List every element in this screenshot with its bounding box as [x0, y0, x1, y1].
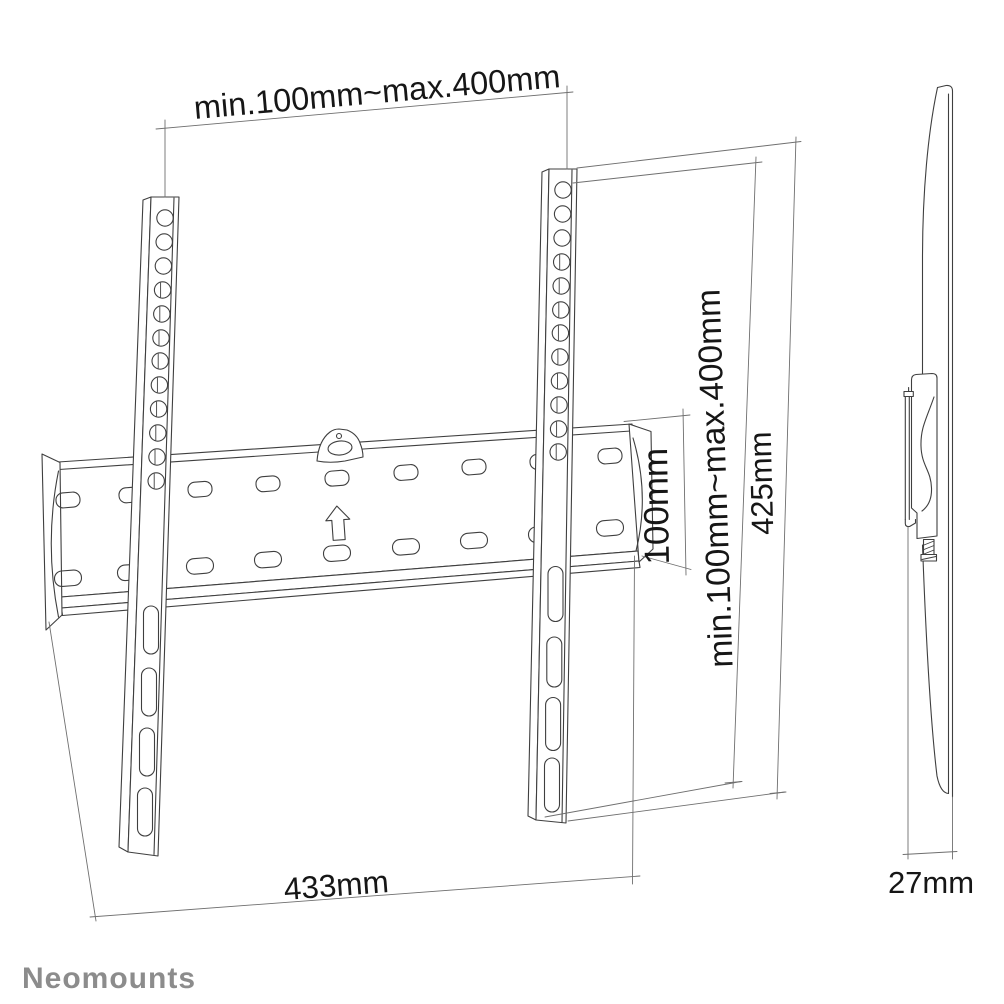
locking-screw [921, 540, 937, 562]
label-vesa-width: min.100mm~max.400mm [192, 58, 561, 126]
dim-vesa-height-ext-bottom [545, 782, 741, 818]
dim-plate-height-line [683, 409, 686, 575]
tv-back-lower [923, 545, 949, 794]
dim-rail-height-ext-top [577, 142, 801, 169]
label-plate-width: 433mm [282, 863, 389, 907]
dim-plate-width-ext-left [49, 622, 96, 921]
dim-rail-height-line [777, 137, 796, 799]
dim-wall-distance-line [903, 852, 957, 855]
brand-logo: Neomounts [22, 962, 196, 995]
label-plate-height: 100mm [636, 448, 677, 565]
label-vesa-height: min.100mm~max.400mm [690, 288, 740, 668]
side-view [904, 85, 953, 797]
level-latch [317, 429, 363, 462]
mount-bracket-profile [904, 374, 937, 562]
wall-mount-drawing-page: min.100mm~max.400mm min.100mm~max.400mm … [0, 0, 1004, 1004]
label-wall-distance: 27mm [888, 865, 974, 900]
label-rail-height: 425mm [743, 431, 781, 535]
dim-plate-height-ext-top [624, 415, 690, 422]
plate-left-cap [42, 454, 62, 630]
dim-plate-width-ext-right [633, 556, 635, 884]
right-vesa-rail [528, 169, 577, 823]
tv-back-upper [923, 88, 938, 381]
wall-mount-technical-drawing: min.100mm~max.400mm min.100mm~max.400mm … [0, 0, 1004, 1004]
tv-top-edge [938, 85, 953, 91]
